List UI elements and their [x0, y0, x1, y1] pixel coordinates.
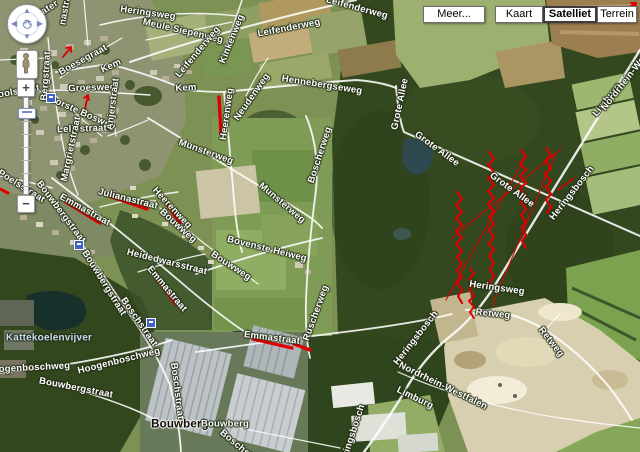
- pan-left-button[interactable]: ◀: [11, 20, 17, 28]
- transit-stop-icon[interactable]: [146, 318, 156, 328]
- zoom-tick: [21, 147, 31, 148]
- pan-right-button[interactable]: ▶: [37, 20, 43, 28]
- map-canvas[interactable]: HeringswegMeule SiepenwegLeifenderwegKin…: [0, 0, 640, 452]
- google-maps-window: HeringswegMeule SiepenwegLeifenderwegKin…: [0, 0, 640, 452]
- map-type-button-terrein[interactable]: Terrein: [597, 6, 637, 23]
- zoom-tick: [21, 121, 31, 122]
- zoom-slider-thumb[interactable]: [18, 108, 36, 119]
- street-view-pegman-button[interactable]: [16, 50, 38, 79]
- zoom-tick: [21, 186, 31, 187]
- pan-up-button[interactable]: ▲: [23, 7, 31, 15]
- satellite-imagery: [0, 0, 640, 452]
- transit-stop-icon[interactable]: [46, 93, 56, 103]
- pan-down-button[interactable]: ▼: [23, 33, 31, 41]
- zoom-tick: [21, 134, 31, 135]
- map-type-button-meer[interactable]: Meer...: [423, 6, 485, 23]
- zoom-out-button[interactable]: −: [17, 195, 35, 213]
- pan-hand-icon[interactable]: [21, 18, 33, 30]
- zoom-tick: [21, 160, 31, 161]
- map-type-button-satelliet[interactable]: Satelliet: [543, 6, 597, 23]
- map-type-button-kaart[interactable]: Kaart: [495, 6, 543, 23]
- transit-stop-icon[interactable]: [74, 240, 84, 250]
- zoom-tick: [21, 173, 31, 174]
- zoom-in-button[interactable]: +: [17, 79, 35, 97]
- pegman-icon: [17, 51, 35, 76]
- pan-control[interactable]: ▲ ▼ ◀ ▶: [7, 4, 47, 44]
